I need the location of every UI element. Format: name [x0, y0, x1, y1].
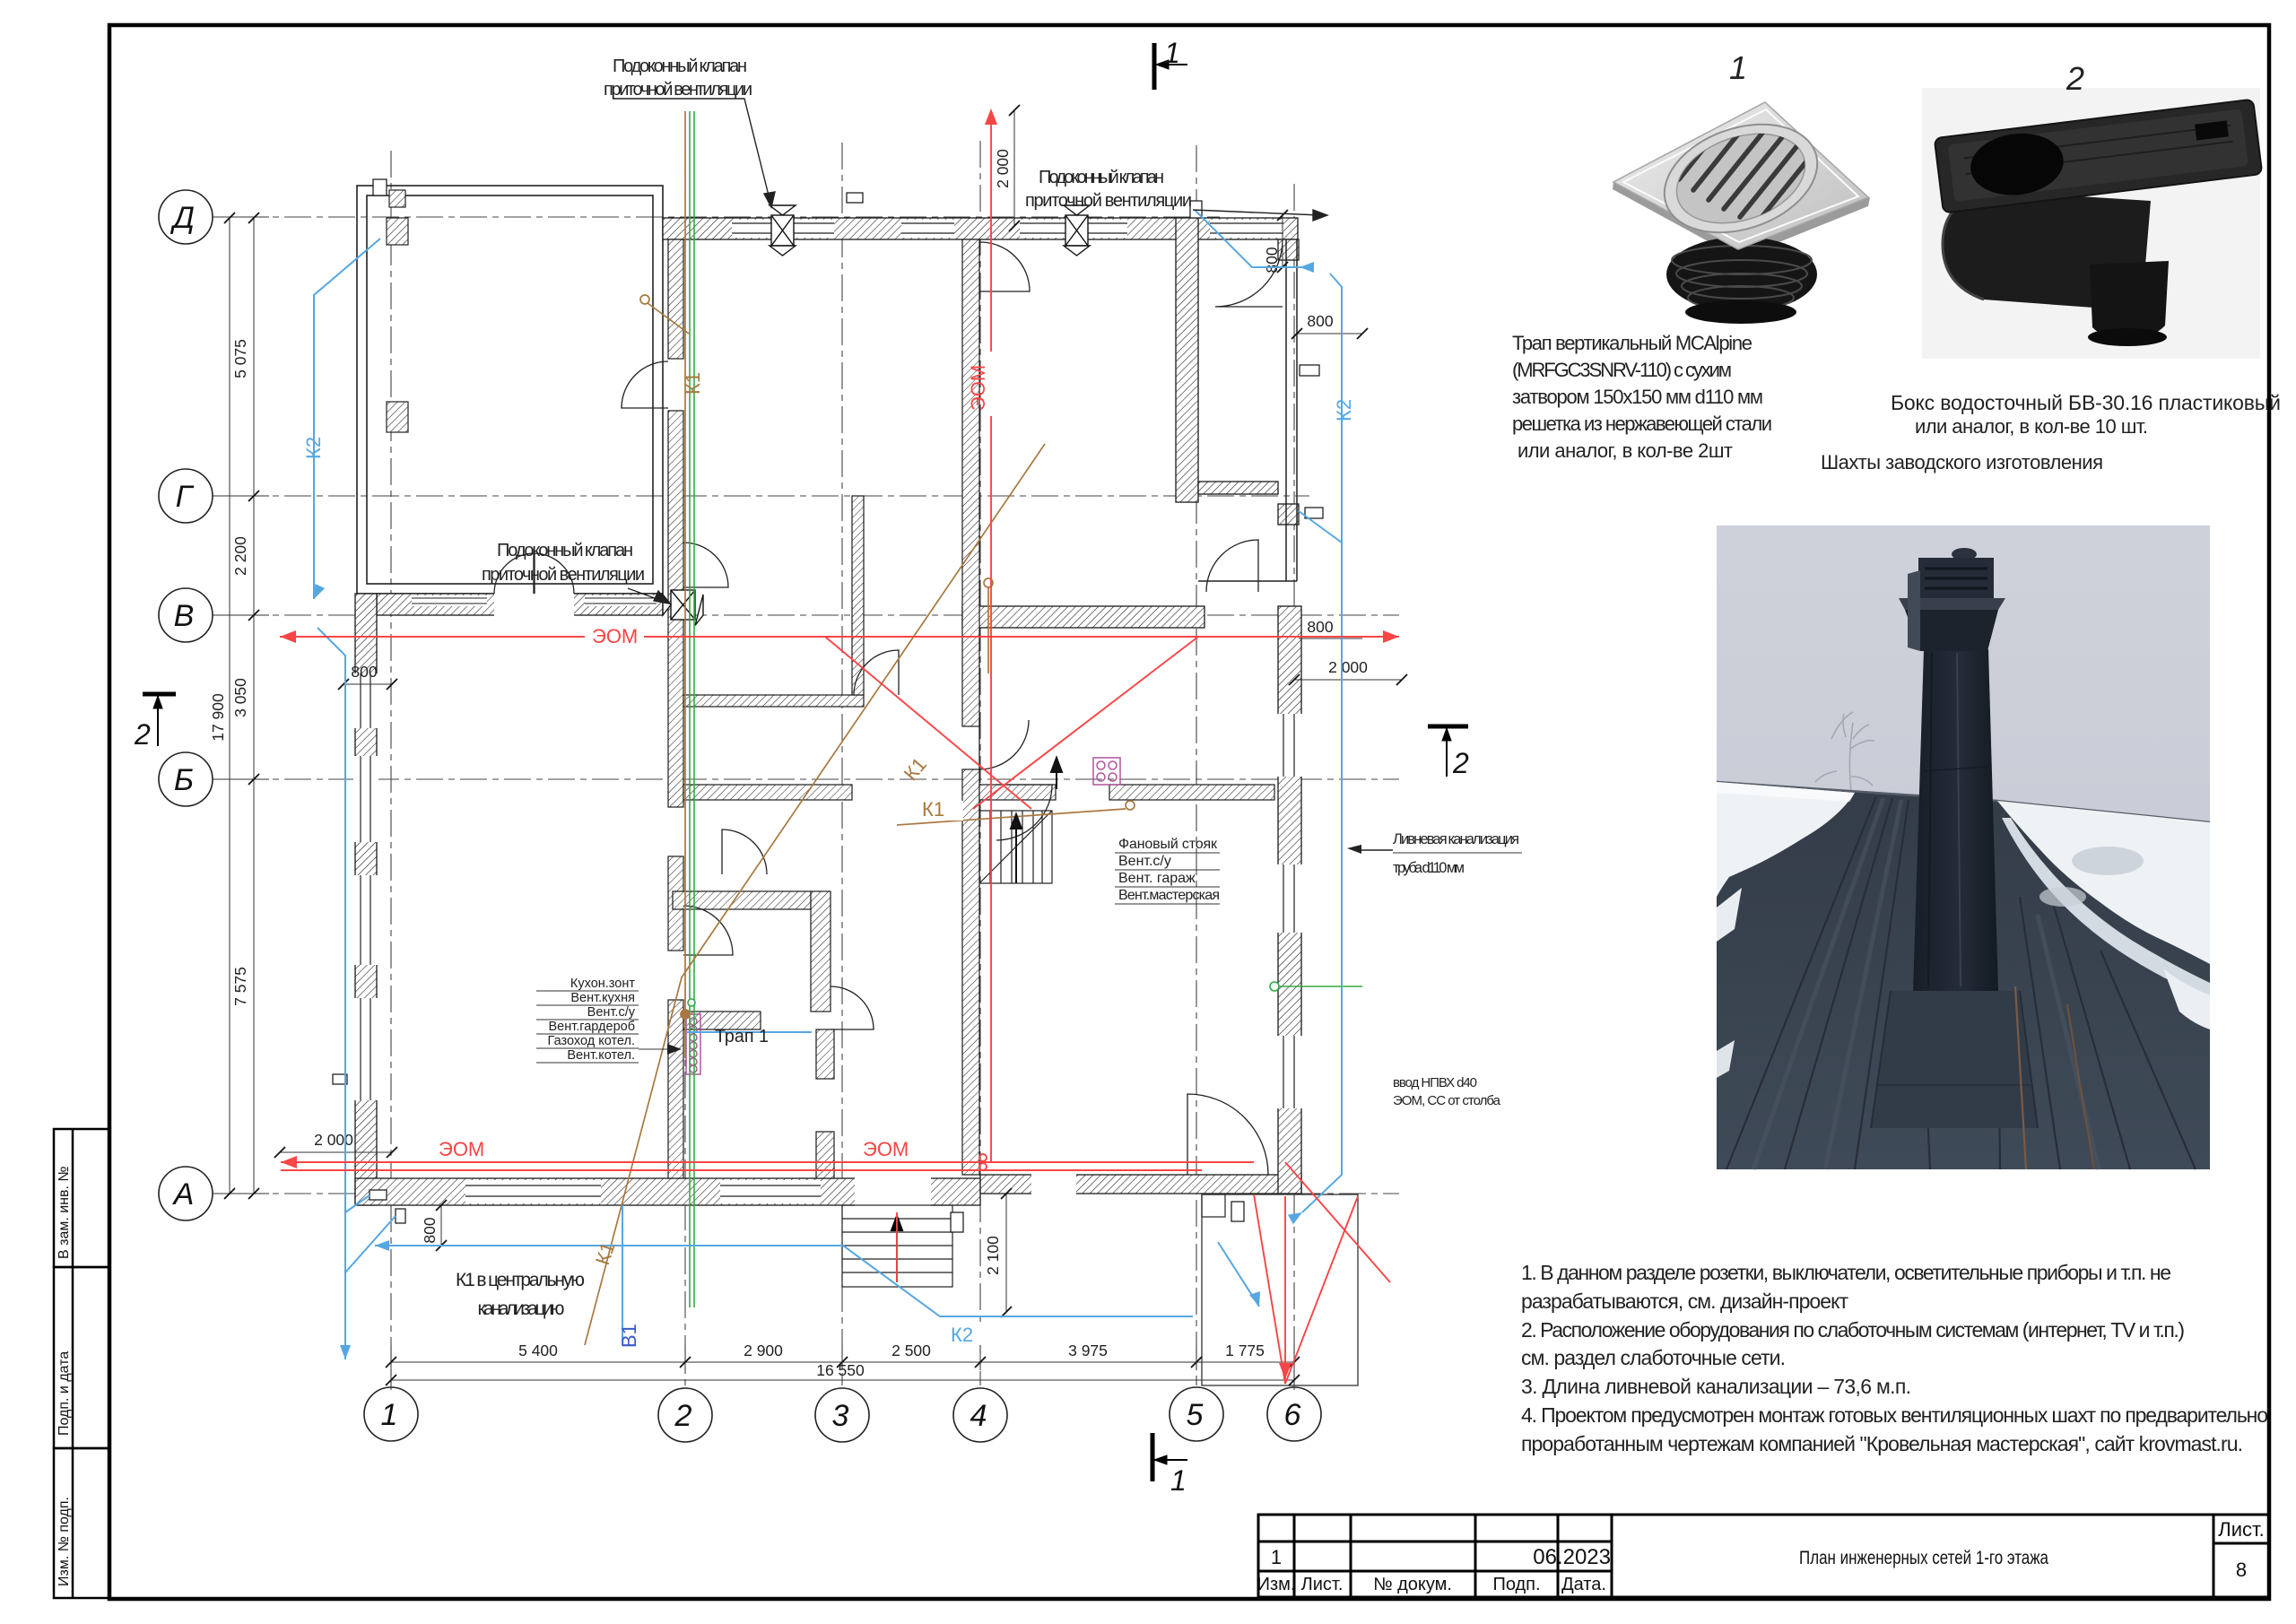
svg-text:800: 800	[1307, 312, 1333, 330]
svg-text:проработанным чертежам компани: проработанным чертежам компанией "Кровел…	[1521, 1432, 2243, 1455]
svg-text:приточной вентиляции: приточной вентиляции	[482, 565, 645, 585]
svg-text:Ливневая канализация: Ливневая канализация	[1393, 831, 1519, 847]
svg-text:2 000: 2 000	[1328, 658, 1368, 676]
svg-text:Г: Г	[176, 480, 195, 514]
svg-text:К2: К2	[951, 1324, 973, 1346]
svg-text:Изм. № подп.: Изм. № подп.	[57, 1497, 72, 1586]
svg-text:разрабатываются, см. дизайн-пр: разрабатываются, см. дизайн-проект	[1521, 1290, 1848, 1313]
svg-text:ЭОМ: ЭОМ	[439, 1138, 484, 1160]
svg-text:Вент.гардероб: Вент.гардероб	[548, 1020, 635, 1034]
svg-text:А: А	[172, 1177, 195, 1211]
svg-text:Вент.с/у: Вент.с/у	[1118, 854, 1171, 869]
svg-text:Вент.мастерская: Вент.мастерская	[1118, 888, 1220, 903]
svg-text:800: 800	[421, 1217, 439, 1243]
svg-text:Подоконный клапан: Подоконный клапан	[497, 541, 633, 560]
svg-text:ЭОМ: ЭОМ	[967, 365, 989, 411]
svg-text:1: 1	[381, 1398, 398, 1432]
svg-text:3: 3	[832, 1399, 849, 1433]
svg-text:канализацию: канализацию	[478, 1298, 565, 1319]
svg-text:Бокс водосточный БВ-30.16 плас: Бокс водосточный БВ-30.16 пластиковый	[1891, 391, 2281, 414]
svg-text:2: 2	[134, 718, 151, 751]
svg-text:Вент.котел.: Вент.котел.	[567, 1048, 635, 1063]
svg-text:Лист.: Лист.	[1301, 1575, 1344, 1594]
svg-text:1: 1	[1729, 49, 1747, 86]
svg-text:3 975: 3 975	[1068, 1342, 1108, 1359]
svg-text:К1: К1	[922, 798, 944, 821]
svg-text:1 775: 1 775	[1225, 1342, 1265, 1359]
svg-text:5: 5	[1187, 1398, 1204, 1432]
svg-text:1. В данном разделе розетки, в: 1. В данном разделе розетки, выключатели…	[1521, 1261, 2171, 1284]
svg-text:2 500: 2 500	[891, 1342, 931, 1359]
svg-text:К2: К2	[1333, 399, 1355, 421]
svg-text:К1 в центральную: К1 в центральную	[456, 1270, 585, 1290]
svg-text:№ докум.: № докум.	[1373, 1575, 1452, 1594]
svg-text:Дата.: Дата.	[1561, 1575, 1606, 1594]
svg-text:К2: К2	[302, 437, 325, 459]
svg-text:2: 2	[674, 1399, 692, 1433]
svg-text:2 000: 2 000	[994, 149, 1012, 188]
svg-text:2. Расположение оборудования п: 2. Расположение оборудования по слаботоч…	[1521, 1318, 2185, 1342]
svg-text:8: 8	[2236, 1559, 2247, 1581]
svg-text:7 575: 7 575	[231, 967, 249, 1006]
svg-text:2 200: 2 200	[231, 536, 249, 576]
svg-text:ЭОМ: ЭОМ	[592, 625, 638, 647]
svg-text:2: 2	[2066, 60, 2084, 97]
svg-text:Изм.: Изм.	[1257, 1575, 1296, 1594]
svg-text:Лист.: Лист.	[2218, 1518, 2264, 1541]
svg-text:5 400: 5 400	[518, 1342, 558, 1359]
svg-text:5 075: 5 075	[231, 339, 249, 378]
svg-text:Д: Д	[170, 201, 195, 235]
svg-text:труба d110 мм: труба d110 мм	[1393, 860, 1465, 876]
svg-text:Вент.с/у: Вент.с/у	[587, 1005, 636, 1020]
svg-text:ЭОМ, СС от столба: ЭОМ, СС от столба	[1393, 1093, 1501, 1108]
svg-text:ЭОМ: ЭОМ	[863, 1138, 909, 1160]
svg-text:2 100: 2 100	[984, 1236, 1002, 1275]
svg-text:затвором 150х150 мм d110 мм: затвором 150х150 мм d110 мм	[1512, 386, 1763, 408]
svg-text:17 900: 17 900	[209, 693, 227, 742]
svg-text:2 900: 2 900	[744, 1342, 783, 1359]
svg-text:Трап вертикальный MCAlpine: Трап вертикальный MCAlpine	[1512, 332, 1752, 354]
svg-text:Подп. и дата: Подп. и дата	[57, 1351, 72, 1436]
svg-text:800: 800	[1307, 618, 1333, 636]
svg-text:3 050: 3 050	[231, 678, 249, 717]
svg-text:см. раздел слаботочные сети.: см. раздел слаботочные сети.	[1521, 1346, 1786, 1369]
svg-text:3. Длина ливневой канализации: 3. Длина ливневой канализации – 73,6 м.п…	[1521, 1375, 1911, 1398]
svg-text:800: 800	[351, 663, 377, 681]
svg-text:План инженерных сетей 1-го эта: План инженерных сетей 1-го этажа	[1799, 1548, 2048, 1568]
svg-text:6: 6	[1284, 1398, 1301, 1432]
svg-text:Газоход котел.: Газоход котел.	[548, 1034, 635, 1048]
svg-text:2 000: 2 000	[314, 1131, 353, 1149]
svg-text:800: 800	[1263, 247, 1281, 273]
svg-text:решетка из нержавеющей стали: решетка из нержавеющей стали	[1512, 413, 1772, 435]
svg-text:4. Проектом предусмотрен монта: 4. Проектом предусмотрен монтаж готовых …	[1521, 1403, 2268, 1427]
svg-text:Б: Б	[174, 763, 194, 797]
svg-text:16 550: 16 550	[816, 1361, 865, 1379]
svg-text:1: 1	[1164, 37, 1180, 69]
svg-text:1: 1	[1271, 1546, 1282, 1568]
svg-text:4: 4	[970, 1399, 987, 1433]
svg-text:приточной вентиляции: приточной вентиляции	[604, 80, 752, 100]
svg-text:2: 2	[1452, 747, 1469, 779]
svg-text:06.2023: 06.2023	[1533, 1545, 1611, 1569]
svg-text:(MRFGC3SNRV-110) с сухим: (MRFGC3SNRV-110) с сухим	[1512, 359, 1732, 381]
svg-text:К1: К1	[682, 372, 704, 395]
svg-text:приточной вентиляции: приточной вентиляции	[1025, 191, 1192, 211]
svg-text:Подоконный клапан: Подоконный клапан	[1039, 168, 1164, 187]
svg-text:Фановый стояк: Фановый стояк	[1118, 837, 1218, 852]
svg-text:Трап 1: Трап 1	[715, 1027, 769, 1046]
svg-text:Кухон.зонт: Кухон.зонт	[570, 977, 635, 991]
svg-text:Шахты заводского изготовления: Шахты заводского изготовления	[1821, 451, 2103, 473]
svg-text:Вент. гараж: Вент. гараж	[1118, 871, 1196, 886]
svg-text:1: 1	[1170, 1464, 1187, 1497]
svg-text:Вент.кухня: Вент.кухня	[570, 991, 635, 1005]
svg-text:Подоконный клапан: Подоконный клапан	[613, 56, 747, 76]
svg-text:В: В	[174, 599, 195, 633]
svg-text:В зам. инв. №: В зам. инв. №	[57, 1166, 72, 1259]
svg-text:или аналог, в кол-ве 2шт: или аналог, в кол-ве 2шт	[1518, 439, 1733, 462]
svg-text:ввод НПВХ d40: ввод НПВХ d40	[1393, 1075, 1477, 1090]
svg-text:В1: В1	[618, 1324, 640, 1348]
svg-text:или аналог, в кол-ве 10 шт.: или аналог, в кол-ве 10 шт.	[1915, 415, 2148, 438]
svg-text:Подп.: Подп.	[1492, 1575, 1540, 1594]
